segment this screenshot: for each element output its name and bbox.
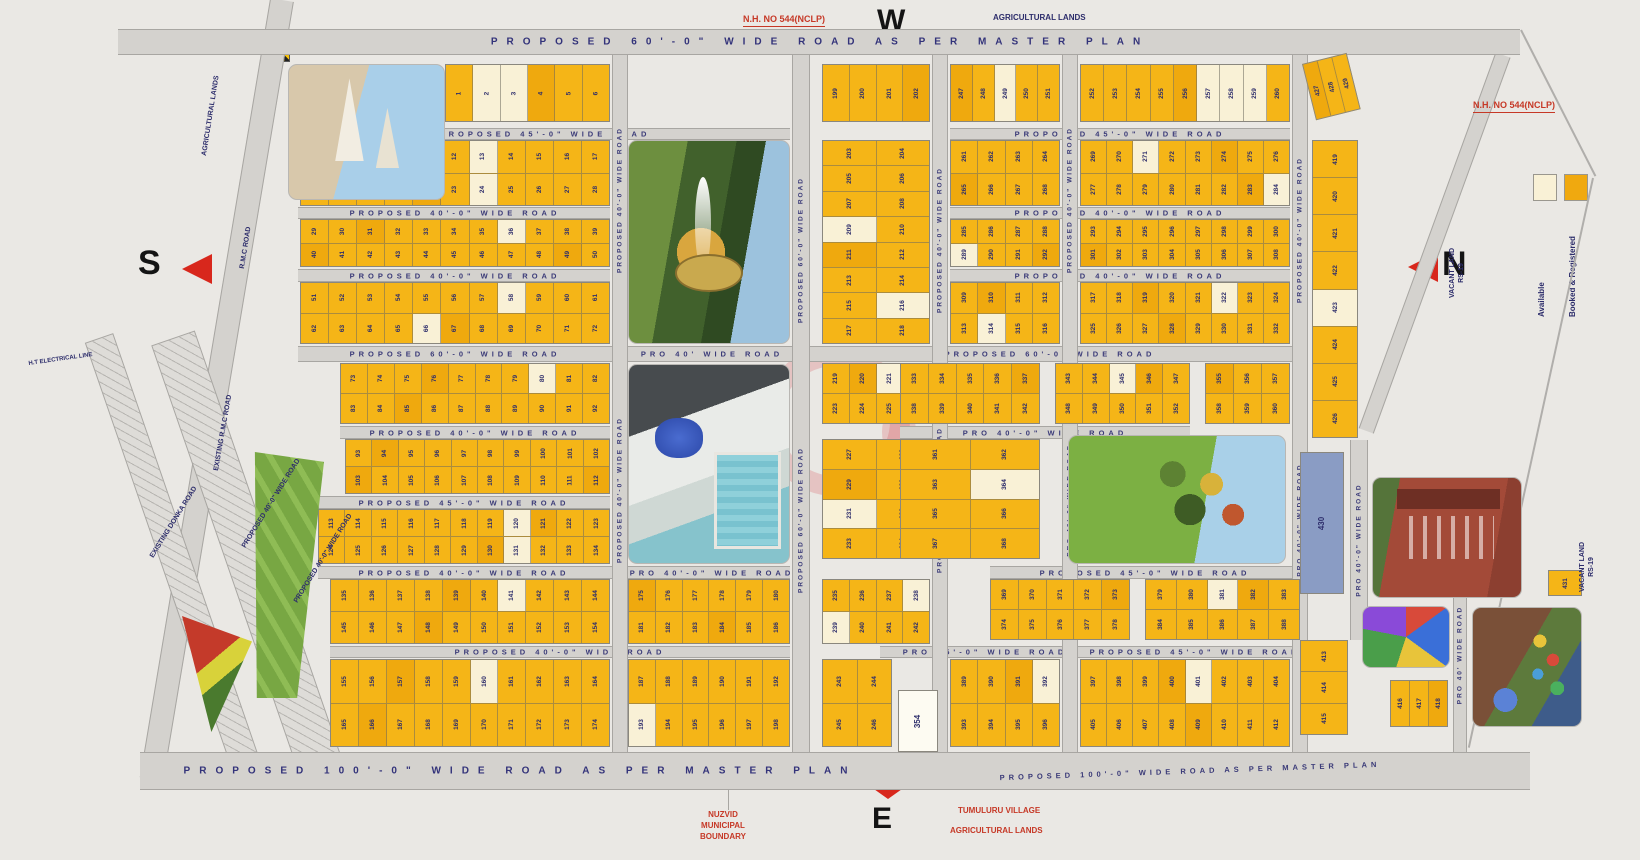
plot: 68 bbox=[470, 314, 498, 344]
plot-number: 44 bbox=[423, 251, 430, 258]
plot-number: 23 bbox=[452, 186, 459, 193]
plot-row: 431 bbox=[1549, 571, 1581, 595]
plot-number: 217 bbox=[846, 325, 853, 336]
plot-number: 76 bbox=[431, 375, 438, 382]
plot-block: 247248249250251 bbox=[950, 64, 1060, 122]
plot: 167 bbox=[387, 704, 415, 747]
plot-number: 229 bbox=[846, 479, 853, 490]
road-label: PROPOSED 60'-0" WIDE ROAD bbox=[798, 447, 805, 593]
plot-row: 217218 bbox=[823, 319, 929, 343]
plot-number: 15 bbox=[536, 153, 543, 160]
plot-row: 393394395396 bbox=[951, 704, 1059, 747]
road-label: PROPOSED 100'-0" WIDE ROAD AS PER MASTER… bbox=[184, 766, 857, 777]
plot: 305 bbox=[1186, 244, 1212, 267]
plot: 403 bbox=[1238, 660, 1264, 703]
plot: 133 bbox=[557, 537, 583, 563]
plot: 284 bbox=[1264, 174, 1289, 206]
plot: 259 bbox=[1244, 65, 1267, 121]
plot: 200 bbox=[850, 65, 877, 121]
plot: 122 bbox=[557, 510, 583, 536]
plot: 247 bbox=[951, 65, 973, 121]
plot: 162 bbox=[526, 660, 554, 703]
map-text-label: VACANT LANDRS-19 bbox=[1448, 248, 1467, 298]
plot: 34 bbox=[441, 220, 469, 243]
plot: 96 bbox=[425, 440, 451, 466]
plot: 281 bbox=[1186, 174, 1212, 206]
plot: 405 bbox=[1081, 704, 1107, 747]
plot-row: 333334335336337 bbox=[901, 364, 1039, 394]
plot-block: 427428429 bbox=[1302, 53, 1361, 120]
plot-number: 315 bbox=[1015, 323, 1022, 334]
road-label: PROPOSED 40'-0" WIDE ROAD bbox=[617, 127, 624, 273]
plot-number: 377 bbox=[1084, 619, 1091, 630]
plot: 238 bbox=[903, 580, 929, 611]
plot: 233 bbox=[823, 529, 877, 558]
plot-number: 345 bbox=[1119, 373, 1126, 384]
road-label: PROPOSED 40'-0" WIDE ROAD bbox=[370, 428, 581, 437]
plot: 198 bbox=[763, 704, 789, 747]
plot-number: 81 bbox=[566, 375, 573, 382]
plot-row: 414 bbox=[1301, 672, 1347, 703]
plot: 311 bbox=[1006, 283, 1033, 313]
plot-number: 301 bbox=[1090, 249, 1097, 260]
plot: 144 bbox=[582, 580, 609, 611]
plot: 242 bbox=[903, 612, 929, 643]
plot-number: 204 bbox=[899, 148, 906, 159]
plot: 102 bbox=[584, 440, 609, 466]
plot-number: 258 bbox=[1228, 88, 1235, 99]
plot-number: 318 bbox=[1116, 292, 1123, 303]
plot: 170 bbox=[471, 704, 499, 747]
plot-row: 419 bbox=[1313, 141, 1357, 178]
plot-number: 64 bbox=[367, 325, 374, 332]
plot-number: 238 bbox=[913, 590, 920, 601]
plot: 138 bbox=[415, 580, 443, 611]
plot: 340 bbox=[957, 394, 985, 423]
plot-number: 264 bbox=[1042, 151, 1049, 162]
plot: 229 bbox=[823, 470, 877, 499]
plot: 421 bbox=[1313, 215, 1357, 251]
plot-number: 376 bbox=[1056, 619, 1063, 630]
kids-photo bbox=[1362, 606, 1450, 668]
plot-row: 348349350351352 bbox=[1056, 394, 1189, 423]
plot-number: 208 bbox=[899, 199, 906, 210]
plot-number: 379 bbox=[1157, 589, 1164, 600]
plot-number: 29 bbox=[311, 228, 318, 235]
plot-number: 354 bbox=[913, 714, 922, 727]
road-label: PROPOSED 60'-0" WIDE ROAD bbox=[945, 350, 1156, 359]
plot: 35 bbox=[470, 220, 498, 243]
plot: 296 bbox=[1159, 220, 1185, 243]
plot-number: 428 bbox=[1327, 80, 1336, 92]
plot-number: 100 bbox=[540, 448, 547, 459]
plot-number: 299 bbox=[1247, 226, 1254, 237]
plot-number: 319 bbox=[1142, 292, 1149, 303]
plot-number: 181 bbox=[638, 622, 645, 633]
plot-number: 385 bbox=[1188, 619, 1195, 630]
plot-number: 294 bbox=[1116, 226, 1123, 237]
plot: 90 bbox=[529, 394, 556, 423]
plot-number: 282 bbox=[1221, 184, 1228, 195]
plot-number: 130 bbox=[487, 545, 494, 556]
plot: 267 bbox=[1006, 174, 1033, 206]
plot-block: 1351361371381391401411421431441451461471… bbox=[330, 579, 610, 644]
plot: 315 bbox=[1006, 314, 1033, 344]
plot: 116 bbox=[398, 510, 424, 536]
plot: 380 bbox=[1177, 580, 1208, 609]
plot-row: 215216 bbox=[823, 293, 929, 318]
plot: 110 bbox=[531, 467, 557, 493]
plot-number: 373 bbox=[1112, 589, 1119, 600]
plot-number: 427 bbox=[1312, 84, 1321, 96]
plot-number: 289 bbox=[961, 249, 968, 260]
plot-number: 381 bbox=[1219, 589, 1226, 600]
plot-number: 375 bbox=[1029, 619, 1036, 630]
plot-number: 45 bbox=[452, 251, 459, 258]
plot-block: 2930313233343536373839404142434445464748… bbox=[300, 219, 610, 267]
plot-number: 408 bbox=[1168, 719, 1175, 730]
plot: 195 bbox=[683, 704, 710, 747]
plot: 87 bbox=[449, 394, 476, 423]
plot-number: 281 bbox=[1195, 184, 1202, 195]
plot-number: 168 bbox=[425, 719, 432, 730]
plot-number: 178 bbox=[719, 590, 726, 601]
plot-number: 165 bbox=[341, 719, 348, 730]
road-label: PROPOSED 60'-0" WIDE ROAD bbox=[350, 350, 561, 359]
plot-number: 393 bbox=[961, 719, 968, 730]
plot-row: 145146147148149150151152153154 bbox=[331, 612, 609, 643]
plot: 33 bbox=[413, 220, 441, 243]
plot: 386 bbox=[1208, 610, 1239, 639]
plot: 4 bbox=[528, 65, 555, 121]
plot-number: 3 bbox=[510, 91, 517, 95]
plot: 70 bbox=[526, 314, 554, 344]
plot: 410 bbox=[1212, 704, 1238, 747]
plot-block: 235236237238239240241242 bbox=[822, 579, 930, 644]
plot-number: 246 bbox=[871, 719, 878, 730]
plot: 364 bbox=[971, 470, 1040, 499]
plot-number: 360 bbox=[1272, 403, 1279, 414]
plot-number: 420 bbox=[1331, 191, 1338, 202]
plot: 37 bbox=[526, 220, 554, 243]
road-label: PRO 40' WIDE ROAD bbox=[1457, 606, 1464, 704]
plot-number: 92 bbox=[593, 405, 600, 412]
plot: 137 bbox=[387, 580, 415, 611]
plot-number: 372 bbox=[1084, 589, 1091, 600]
plot-number: 167 bbox=[397, 719, 404, 730]
plot: 130 bbox=[478, 537, 504, 563]
plot: 303 bbox=[1133, 244, 1159, 267]
plot: 50 bbox=[582, 244, 609, 267]
map-text-label: TUMULURU VILLAGE bbox=[958, 806, 1040, 817]
plot-row: 358359360 bbox=[1206, 394, 1289, 423]
plot-block: 123456 bbox=[445, 64, 610, 122]
plot: 154 bbox=[582, 612, 609, 643]
plot: 285 bbox=[951, 220, 978, 243]
plot-number: 203 bbox=[846, 148, 853, 159]
plot: 168 bbox=[415, 704, 443, 747]
plot-number: 28 bbox=[592, 186, 599, 193]
road-label: PRO 40'-0" WIDE ROAD bbox=[1356, 483, 1363, 596]
plot: 160 bbox=[471, 660, 499, 703]
plot-number: 213 bbox=[846, 275, 853, 286]
plot: 48 bbox=[526, 244, 554, 267]
plot-row: 313314315316 bbox=[951, 314, 1059, 344]
plot: 289 bbox=[951, 244, 978, 267]
plot: 324 bbox=[1264, 283, 1289, 313]
plot: 53 bbox=[357, 283, 385, 313]
plot: 325 bbox=[1081, 314, 1107, 344]
plot-row: 73747576777879808182 bbox=[341, 364, 609, 394]
plot-row: 420 bbox=[1313, 178, 1357, 215]
plot: 40 bbox=[301, 244, 329, 267]
plot: 153 bbox=[554, 612, 582, 643]
plot: 306 bbox=[1212, 244, 1238, 267]
plot: 214 bbox=[877, 268, 930, 292]
plot-number: 101 bbox=[566, 448, 573, 459]
plot: 237 bbox=[877, 580, 904, 611]
plot-number: 302 bbox=[1116, 249, 1123, 260]
plot: 181 bbox=[629, 612, 656, 643]
plot-block: 379380381382383384385386387388 bbox=[1145, 579, 1300, 640]
plot-number: 151 bbox=[508, 622, 515, 633]
plot: 379 bbox=[1146, 580, 1177, 609]
plot: 16 bbox=[554, 141, 582, 173]
plot-number: 169 bbox=[453, 719, 460, 730]
plot-number: 390 bbox=[988, 676, 995, 687]
plot: 208 bbox=[877, 192, 930, 216]
plot-row: 293294295296297298299300 bbox=[1081, 220, 1289, 244]
plot-number: 224 bbox=[859, 403, 866, 414]
plot-number: 191 bbox=[746, 676, 753, 687]
plot-number: 194 bbox=[665, 719, 672, 730]
plot-number: 326 bbox=[1116, 323, 1123, 334]
plot-number: 414 bbox=[1320, 682, 1327, 693]
plot-number: 140 bbox=[480, 590, 487, 601]
plot: 219 bbox=[823, 364, 850, 393]
plot: 12 bbox=[441, 141, 469, 173]
plot-number: 52 bbox=[339, 294, 346, 301]
plot: 420 bbox=[1313, 178, 1357, 214]
plot: 349 bbox=[1083, 394, 1110, 423]
plot-number: 50 bbox=[592, 251, 599, 258]
plot: 52 bbox=[329, 283, 357, 313]
plot-number: 423 bbox=[1331, 302, 1338, 313]
plot-number: 263 bbox=[1015, 151, 1022, 162]
plot-number: 329 bbox=[1195, 323, 1202, 334]
plot-number: 288 bbox=[1042, 226, 1049, 237]
plot: 61 bbox=[582, 283, 609, 313]
plot: 78 bbox=[476, 364, 503, 393]
plot: 135 bbox=[331, 580, 359, 611]
plot-number: 55 bbox=[423, 294, 430, 301]
plot-number: 114 bbox=[355, 518, 362, 529]
plot-number: 149 bbox=[453, 622, 460, 633]
plot-number: 96 bbox=[434, 449, 441, 456]
plot-number: 106 bbox=[434, 475, 441, 486]
plot-number: 341 bbox=[994, 403, 1001, 414]
plot: 369 bbox=[991, 580, 1019, 609]
plot-number: 113 bbox=[328, 518, 335, 529]
road-vertical: PROPOSED 60'-0" WIDE ROADPROPOSED 60'-0"… bbox=[792, 55, 810, 752]
plot-number: 48 bbox=[536, 251, 543, 258]
plot: 121 bbox=[531, 510, 557, 536]
plot-number: 324 bbox=[1273, 292, 1280, 303]
plot: 74 bbox=[368, 364, 395, 393]
plot: 211 bbox=[823, 243, 877, 267]
plot-number: 389 bbox=[961, 676, 968, 687]
plot: 29 bbox=[301, 220, 329, 243]
plot-block: 187188189190191192193194195196197198 bbox=[628, 659, 790, 747]
plot-number: 120 bbox=[513, 518, 520, 529]
plot-number: 122 bbox=[566, 518, 573, 529]
plot-number: 17 bbox=[592, 153, 599, 160]
plot: 419 bbox=[1313, 141, 1357, 177]
plot: 71 bbox=[554, 314, 582, 344]
plot: 57 bbox=[470, 283, 498, 313]
plot-number: 185 bbox=[746, 622, 753, 633]
plot-block: 1551561571581591601611621631641651661671… bbox=[330, 659, 610, 747]
plot-number: 269 bbox=[1090, 151, 1097, 162]
plot: 392 bbox=[1033, 660, 1059, 703]
plot-number: 337 bbox=[1022, 373, 1029, 384]
plot: 27 bbox=[554, 174, 582, 206]
plot-number: 58 bbox=[508, 294, 515, 301]
plot-number: 340 bbox=[966, 403, 973, 414]
plot-number: 383 bbox=[1281, 589, 1288, 600]
plot-number: 248 bbox=[980, 88, 987, 99]
plot-number: 293 bbox=[1090, 226, 1097, 237]
plot-number: 103 bbox=[355, 475, 362, 486]
plot: 14 bbox=[498, 141, 526, 173]
plot: 286 bbox=[978, 220, 1005, 243]
plot: 361 bbox=[901, 440, 971, 469]
plot-number: 339 bbox=[939, 403, 946, 414]
plot-row: 422 bbox=[1313, 252, 1357, 289]
plot-number: 70 bbox=[536, 325, 543, 332]
plot-number: 80 bbox=[539, 375, 546, 382]
plot: 98 bbox=[478, 440, 504, 466]
plot: 254 bbox=[1127, 65, 1150, 121]
plot: 189 bbox=[683, 660, 710, 703]
plot-number: 402 bbox=[1221, 676, 1228, 687]
plot-number: 180 bbox=[773, 590, 780, 601]
plot: 394 bbox=[978, 704, 1005, 747]
plot-number: 292 bbox=[1042, 249, 1049, 260]
plot-number: 314 bbox=[988, 323, 995, 334]
plot-row: 124125126127128129130131132133134 bbox=[319, 537, 609, 563]
road-label: PROPOSED 45'-0" WIDE ROAD bbox=[1090, 648, 1301, 657]
plot: 431 bbox=[1549, 571, 1581, 595]
plot: 418 bbox=[1429, 681, 1447, 726]
plot-row: 203204 bbox=[823, 141, 929, 166]
plot-row: 365366 bbox=[901, 500, 1039, 530]
fountain-photo bbox=[628, 140, 790, 344]
plot: 251 bbox=[1038, 65, 1059, 121]
plot: 342 bbox=[1012, 394, 1039, 423]
road-horizontal: PROPOSED 40'-0" WIDE ROAD bbox=[298, 269, 610, 282]
plot: 389 bbox=[951, 660, 978, 703]
plot-number: 254 bbox=[1135, 88, 1142, 99]
plot-number: 332 bbox=[1273, 323, 1280, 334]
plot-number: 215 bbox=[846, 300, 853, 311]
plot: 371 bbox=[1047, 580, 1075, 609]
plot-number: 221 bbox=[886, 373, 893, 384]
plot-block: 9394959697989910010110210310410510610710… bbox=[345, 439, 610, 494]
plot-number: 135 bbox=[341, 590, 348, 601]
plot-number: 253 bbox=[1112, 88, 1119, 99]
plot-row: 261262263264 bbox=[951, 141, 1059, 174]
plot-number: 73 bbox=[350, 375, 357, 382]
plot-number: 359 bbox=[1244, 403, 1251, 414]
plot: 63 bbox=[329, 314, 357, 344]
plot: 391 bbox=[1006, 660, 1033, 703]
plot: 258 bbox=[1220, 65, 1243, 121]
plot: 55 bbox=[413, 283, 441, 313]
plot-block: 3173183193203213223233243253263273283293… bbox=[1080, 282, 1290, 344]
plot-number: 331 bbox=[1247, 323, 1254, 334]
plot: 268 bbox=[1033, 174, 1059, 206]
plot: 241 bbox=[877, 612, 904, 643]
plot-block: 7374757677787980818283848586878889909192 bbox=[340, 363, 610, 424]
plot-number: 125 bbox=[355, 545, 362, 556]
plot: 397 bbox=[1081, 660, 1107, 703]
plot: 423 bbox=[1313, 290, 1357, 326]
plot-row: 4041424344454647484950 bbox=[301, 244, 609, 267]
plot: 28 bbox=[582, 174, 609, 206]
plot-block: 2932942952962972982993003013023033043053… bbox=[1080, 219, 1290, 267]
plot: 373 bbox=[1102, 580, 1129, 609]
plot: 406 bbox=[1107, 704, 1133, 747]
plot: 185 bbox=[736, 612, 763, 643]
plot-number: 127 bbox=[408, 545, 415, 556]
plot: 204 bbox=[877, 141, 930, 165]
plot-number: 95 bbox=[408, 449, 415, 456]
plot: 243 bbox=[823, 660, 858, 703]
plot: 64 bbox=[357, 314, 385, 344]
plot-number: 4 bbox=[538, 91, 545, 95]
plot-number: 137 bbox=[397, 590, 404, 601]
plot-number: 343 bbox=[1065, 373, 1072, 384]
plot: 179 bbox=[736, 580, 763, 611]
plot-block: 369370371372373374375376377378 bbox=[990, 579, 1130, 640]
plot: 348 bbox=[1056, 394, 1083, 423]
plot: 244 bbox=[858, 660, 892, 703]
plot-number: 26 bbox=[536, 186, 543, 193]
plot-number: 371 bbox=[1056, 589, 1063, 600]
plot-number: 41 bbox=[339, 251, 346, 258]
plot-number: 33 bbox=[423, 228, 430, 235]
plot-number: 186 bbox=[773, 622, 780, 633]
plot: 32 bbox=[385, 220, 413, 243]
plot-number: 346 bbox=[1146, 373, 1153, 384]
plot-number: 283 bbox=[1247, 184, 1254, 195]
plot: 376 bbox=[1047, 610, 1075, 639]
plot-number: 265 bbox=[961, 184, 968, 195]
plot: 99 bbox=[504, 440, 530, 466]
plot: 314 bbox=[978, 314, 1005, 344]
plot: 424 bbox=[1313, 327, 1357, 363]
plot-number: 384 bbox=[1157, 619, 1164, 630]
plot-row: 211212 bbox=[823, 243, 929, 268]
plot-row: 367368 bbox=[901, 529, 1039, 558]
plot-number: 287 bbox=[1015, 226, 1022, 237]
plot-number: 317 bbox=[1090, 292, 1097, 303]
plot: 387 bbox=[1238, 610, 1269, 639]
plot-number: 334 bbox=[939, 373, 946, 384]
plot: 295 bbox=[1133, 220, 1159, 243]
plot: 201 bbox=[877, 65, 904, 121]
